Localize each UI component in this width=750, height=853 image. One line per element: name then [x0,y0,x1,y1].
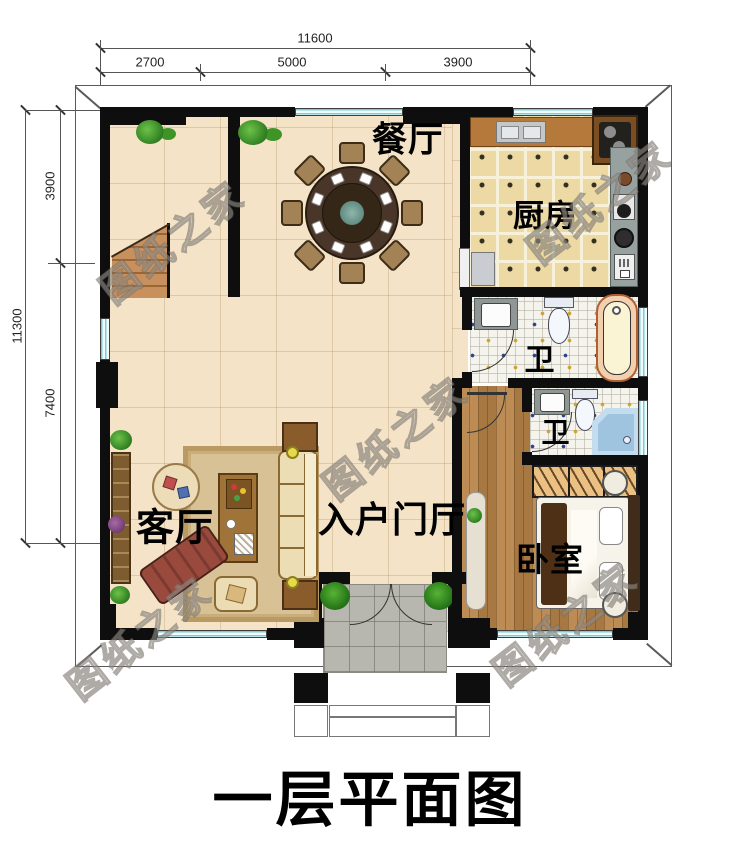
plant [136,120,164,144]
wall-bath-lower-left [522,388,532,412]
wall-column [96,362,118,408]
plant [467,508,482,523]
dining-chair [339,142,365,164]
room-label-kitchen: 厨房 [513,191,577,236]
hob-burner [617,204,631,218]
porch-shrub-left [320,582,350,610]
wall-hall-bedroom [452,378,466,388]
plant [110,586,130,604]
oven [614,254,635,280]
room-label-dining: 餐厅 [372,112,444,163]
porch-step [329,705,456,717]
window-bath-lower [638,400,648,457]
window-left [100,318,110,360]
dining-chair [401,200,423,226]
dim-label-3900: 3900 [444,55,473,70]
fridge [471,252,495,286]
sink-bowl [501,126,519,139]
dining-chair [339,262,365,284]
lamp [286,576,299,589]
ottoman-pillow [162,475,177,490]
bedside-lamp [602,592,628,618]
kitchen-sink [496,121,546,143]
lazy-susan [340,201,364,225]
plan-title: 一层平面图 [213,752,528,839]
plant [238,120,268,145]
shower-tray [598,414,634,451]
table-tray [226,479,252,509]
porch-pillar-left [294,673,328,703]
wash-basin [540,393,565,412]
oven-door [620,270,630,278]
room-label-bath-lower: 卫 [541,411,570,451]
porch-shrub-right [424,582,454,610]
porch-step [329,717,456,737]
toilet-tank [572,389,598,399]
window-kitchen-top [513,108,593,116]
toilet-tank [544,297,574,308]
sink-bowl [523,126,541,139]
pillar-base-right [456,705,490,737]
wall-bath-upper-left [462,297,472,330]
flower-plant [108,516,125,533]
armchair [214,576,258,612]
kitchen-round-sink [614,228,634,248]
wall-wardrobe-top [522,455,648,465]
window-living-bottom [157,630,267,638]
plant [110,430,132,450]
headboard [628,495,640,611]
pillar-base-left [294,705,328,737]
dim-label-7400: 7400 [43,389,58,418]
room-label-foyer: 入户门厅 [318,491,466,543]
bathtub [596,294,638,382]
flower [234,495,240,501]
sofa [278,450,318,580]
bath-upper-vanity [474,298,518,330]
wall-bottom [100,628,157,640]
pillow [599,507,623,545]
window-bedroom-bottom [497,630,613,638]
porch-pillar-right [456,673,490,703]
window-bath-upper [638,307,648,377]
flower [240,488,246,494]
bedside-lamp [602,470,628,496]
teacup [226,519,236,529]
bathtub-drain [612,306,621,315]
wall-bottom [613,628,648,640]
room-label-bedroom: 卧室 [516,533,584,581]
burner [604,126,616,138]
dim-label-11300: 11300 [10,308,25,343]
wash-basin [481,303,511,327]
wall-right [638,117,648,307]
kitchen-pot [618,172,632,186]
room-label-bath-upper: 卫 [525,335,556,379]
shower [592,408,638,455]
floor-plan: 11600 2700 5000 3900 11300 3900 7400 [0,0,750,853]
armchair-pillow [225,584,246,604]
lamp [286,446,299,459]
dining-chair [281,200,303,226]
kitchen-door [459,248,470,290]
dim-label-5000: 5000 [278,55,307,70]
basket [234,533,254,555]
gas-hob [613,194,635,220]
wall-stairhall [228,117,240,297]
wall-kitchen-left [460,117,470,248]
dim-label-3900-left: 3900 [43,172,58,201]
dim-label-2700: 2700 [136,55,165,70]
wall-left [100,117,110,318]
wardrobe-divider [568,467,570,497]
dining-set [305,166,399,260]
dim-label-11600: 11600 [297,31,332,46]
wall-column [294,618,324,648]
oven-grille [619,259,631,267]
shower-drain [623,436,631,444]
flower [231,484,237,490]
stair-stringer [167,223,170,298]
sofa-back [304,454,316,576]
room-label-living: 客厅 [136,497,214,552]
